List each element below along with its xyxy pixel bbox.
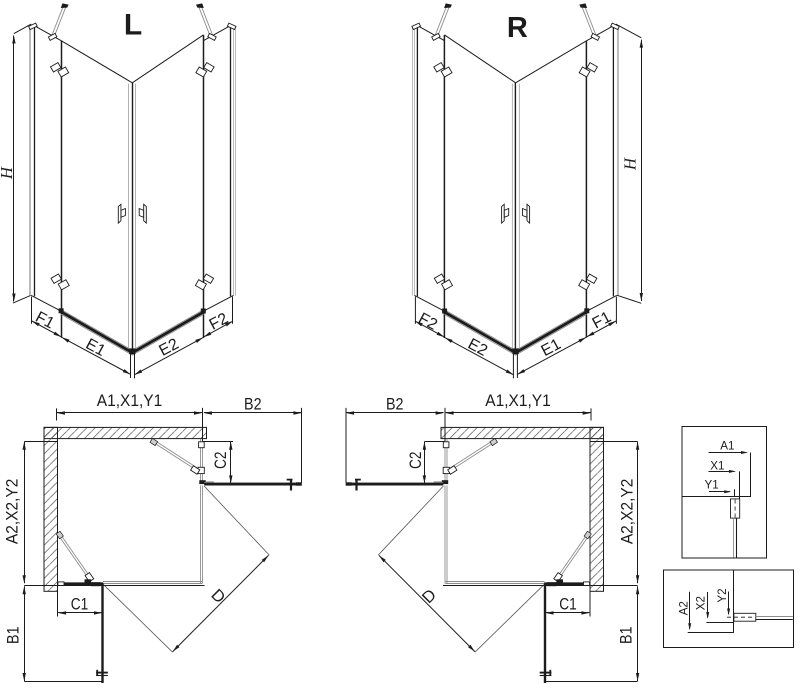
- svg-text:A2,X2,Y2: A2,X2,Y2: [4, 479, 22, 545]
- svg-text:B2: B2: [386, 395, 404, 413]
- svg-text:C2: C2: [407, 452, 425, 470]
- svg-text:D: D: [419, 586, 440, 607]
- svg-text:B2: B2: [244, 395, 262, 413]
- svg-text:A1,X1,Y1: A1,X1,Y1: [485, 392, 551, 410]
- svg-text:H: H: [0, 166, 16, 180]
- svg-text:Y1: Y1: [705, 478, 720, 492]
- svg-text:C1: C1: [559, 595, 577, 613]
- svg-text:X1: X1: [710, 458, 725, 472]
- svg-text:F2: F2: [207, 310, 232, 334]
- svg-text:F1: F1: [590, 309, 615, 333]
- svg-text:A2: A2: [676, 601, 690, 616]
- svg-text:F1: F1: [32, 309, 57, 333]
- svg-text:D: D: [207, 586, 228, 607]
- svg-text:A2,X2,Y2: A2,X2,Y2: [618, 479, 636, 545]
- svg-text:A1,X1,Y1: A1,X1,Y1: [97, 392, 163, 410]
- svg-text:F2: F2: [415, 310, 440, 334]
- svg-text:R: R: [507, 12, 528, 44]
- svg-text:H: H: [621, 157, 640, 171]
- svg-text:Y2: Y2: [715, 588, 729, 603]
- svg-text:B1: B1: [618, 626, 636, 644]
- svg-text:C1: C1: [71, 595, 89, 613]
- svg-text:B1: B1: [4, 626, 22, 644]
- svg-text:L: L: [124, 9, 142, 42]
- svg-text:E2: E2: [465, 336, 490, 360]
- svg-text:C2: C2: [212, 452, 230, 470]
- svg-text:X2: X2: [693, 596, 707, 611]
- svg-text:A1: A1: [720, 439, 735, 453]
